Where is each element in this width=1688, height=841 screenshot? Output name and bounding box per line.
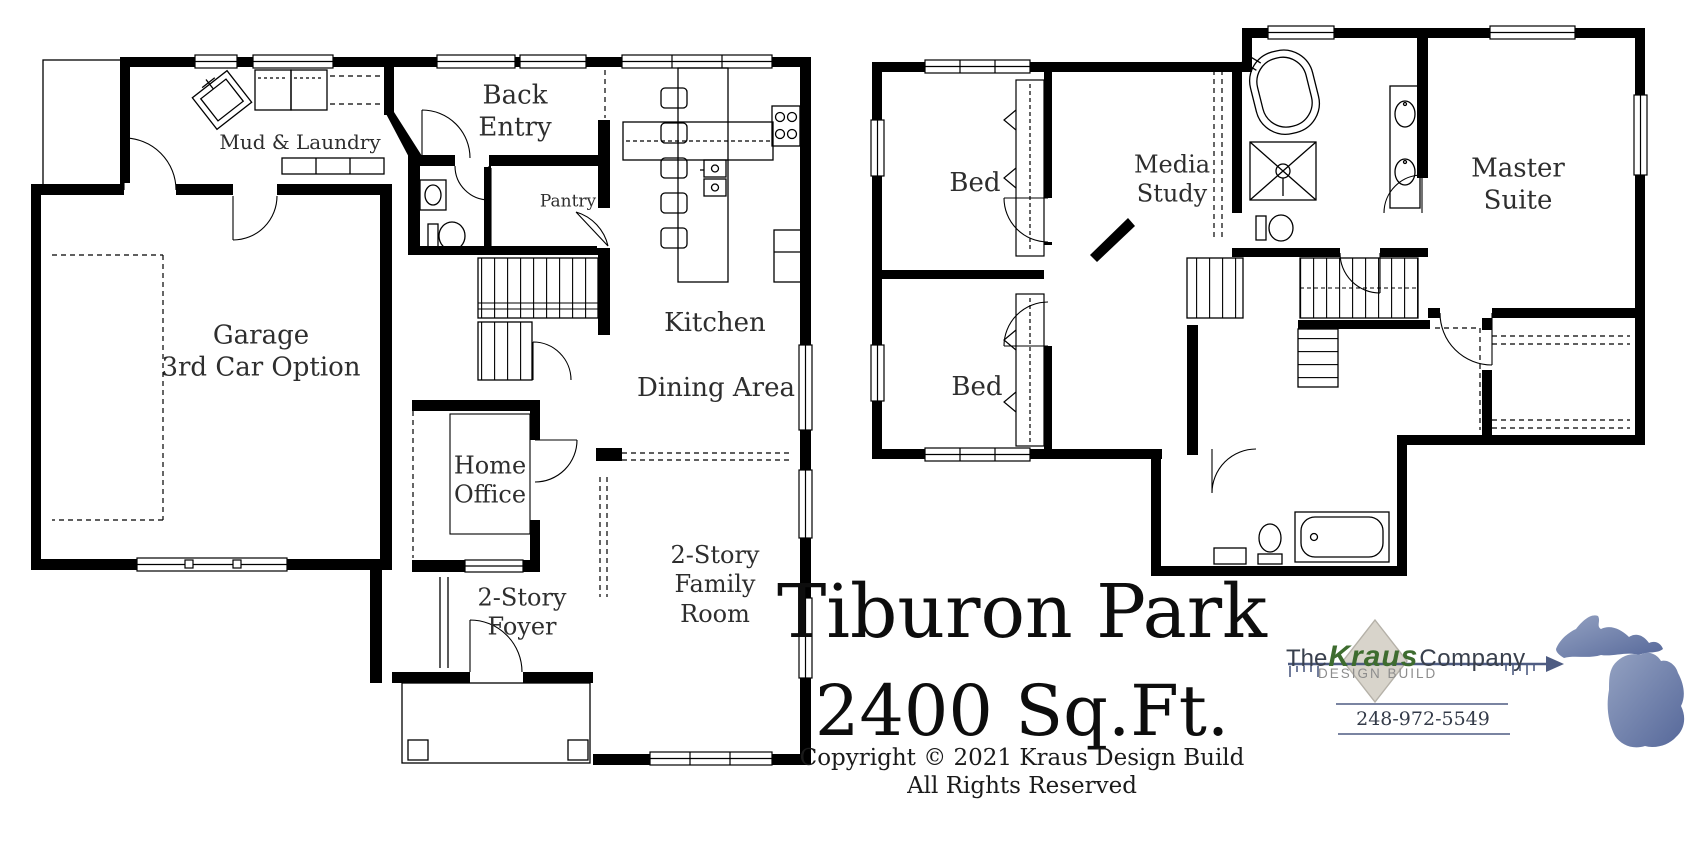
master-toilet-icon [1256,215,1293,241]
side-stoop-outline [43,60,121,191]
powder-toilet-icon [428,222,465,250]
room-label-media-study: Media Study [1134,151,1210,210]
room-label-foyer: 2-Story Foyer [478,584,567,643]
design-build-tagline: DESIGN BUILD [1318,666,1437,681]
phone-number: 248-972-5549 [1336,708,1510,730]
first-floor-plan [31,55,812,765]
mud-bench [282,158,384,174]
second-floor-plan [871,26,1647,576]
room-label-home-office: Home Office [454,452,526,511]
powder-sink-icon [416,180,446,210]
plan-title: Tiburon Park [777,569,1267,655]
hall-vanity-icon [1214,548,1246,564]
porch-outline [402,683,590,763]
shower-icon [1250,142,1316,200]
room-label-pantry: Pantry [540,192,596,213]
michigan-state-icon [1556,615,1684,747]
rights-line: All Rights Reserved [907,773,1137,799]
foyer-closet [440,577,448,668]
walls [31,57,811,765]
room-label-bed-2: Bed [951,372,1002,404]
fridge-icon [774,230,802,282]
dryer-icon [291,70,327,110]
room-label-bed-1: Bed [949,168,1000,200]
garage-door [137,558,287,571]
bedroom-closets [1004,80,1044,446]
porch-post [408,740,428,760]
floor-plan-sheet: Mud & Laundry Back Entry Pantry Kitchen … [0,0,1688,841]
plan-area: 2400 Sq.Ft. [815,670,1229,752]
island-sink-icon [700,160,726,196]
double-vanity-icon [1390,86,1420,208]
bathtub-icon [1240,40,1325,141]
stove-icon [772,106,800,146]
walls [872,28,1645,576]
hall-bathtub-icon [1295,512,1389,562]
bar-stools [661,88,687,248]
copyright-line: Copyright © 2021 Kraus Design Build [800,745,1245,771]
room-label-back-entry: Back Entry [478,80,551,143]
room-label-garage: Garage 3rd Car Option [161,320,360,383]
room-label-mud-laundry: Mud & Laundry [219,130,380,154]
kitchen-counter [623,122,773,160]
room-label-kitchen: Kitchen [664,308,766,340]
washer-icon [255,70,291,110]
porch-post [568,740,588,760]
room-label-dining-area: Dining Area [637,373,795,405]
door-swings [1004,175,1492,493]
room-label-family-room: 2-Story Family Room [671,541,760,629]
hall-toilet-icon [1258,524,1282,564]
room-label-master-suite: Master Suite [1471,153,1565,216]
staircase-first-floor [478,258,598,380]
kitchen-island [678,68,728,282]
utility-sink-icon [189,66,252,129]
